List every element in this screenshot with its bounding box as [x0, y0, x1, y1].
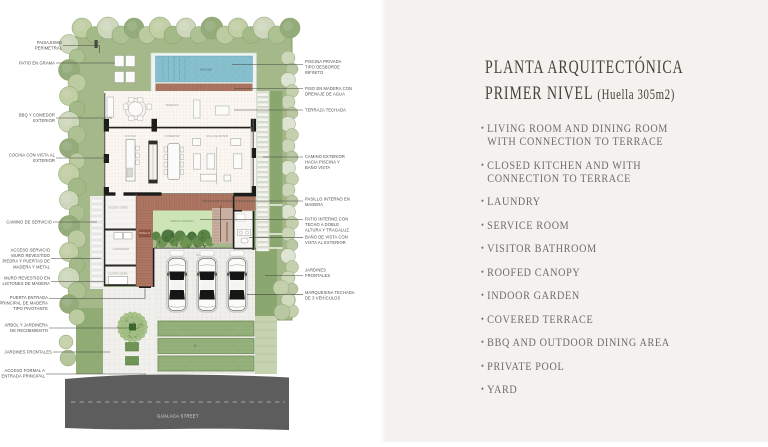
- svg-text:SALA DE ESTAR: SALA DE ESTAR: [206, 134, 228, 138]
- svg-text:COMEDOR: COMEDOR: [164, 134, 179, 138]
- svg-text:PASILLO: PASILLO: [139, 231, 150, 235]
- svg-text:PATIO EN GRAMA: PATIO EN GRAMA: [19, 61, 55, 66]
- svg-text:CAMINO DE SERVICIO: CAMINO DE SERVICIO: [6, 220, 52, 225]
- svg-text:JARDINES FRONTALES: JARDINES FRONTALES: [5, 350, 53, 355]
- svg-text:MURO REVESTIDO ENLISTONES DE M: MURO REVESTIDO ENLISTONES DE MADERA: [3, 276, 51, 287]
- svg-text:GUALACA STREET: GUALACA STREET: [157, 414, 199, 419]
- svg-text:LAVANDERIA: LAVANDERIA: [113, 247, 130, 251]
- svg-text:JARDIN INTERNO: JARDIN INTERNO: [170, 219, 194, 223]
- svg-text:TERRAZA TECHADA: TERRAZA TECHADA: [305, 108, 346, 113]
- svg-text:TERRAZA: TERRAZA: [165, 103, 179, 107]
- svg-text:ARBOL Y JARDINERADE RECIBIMIEN: ARBOL Y JARDINERADE RECIBIMIENTO: [5, 323, 49, 334]
- svg-text:PAISAJISMOPERIMETRAL: PAISAJISMOPERIMETRAL: [35, 40, 63, 51]
- svg-text:BAÑO DE VISTA CONVISTA AL EXTE: BAÑO DE VISTA CONVISTA AL EXTERIOR: [305, 235, 348, 246]
- svg-text:PISCINA: PISCINA: [200, 68, 212, 72]
- svg-text:ACCESO FORMAL AENTRADA PRINCIP: ACCESO FORMAL AENTRADA PRINCIPAL: [2, 368, 46, 379]
- svg-text:CUARTO SERV.: CUARTO SERV.: [108, 272, 128, 276]
- svg-text:COCINA: COCINA: [124, 134, 135, 138]
- svg-text:ACCESO SERV.: ACCESO SERV.: [108, 206, 128, 210]
